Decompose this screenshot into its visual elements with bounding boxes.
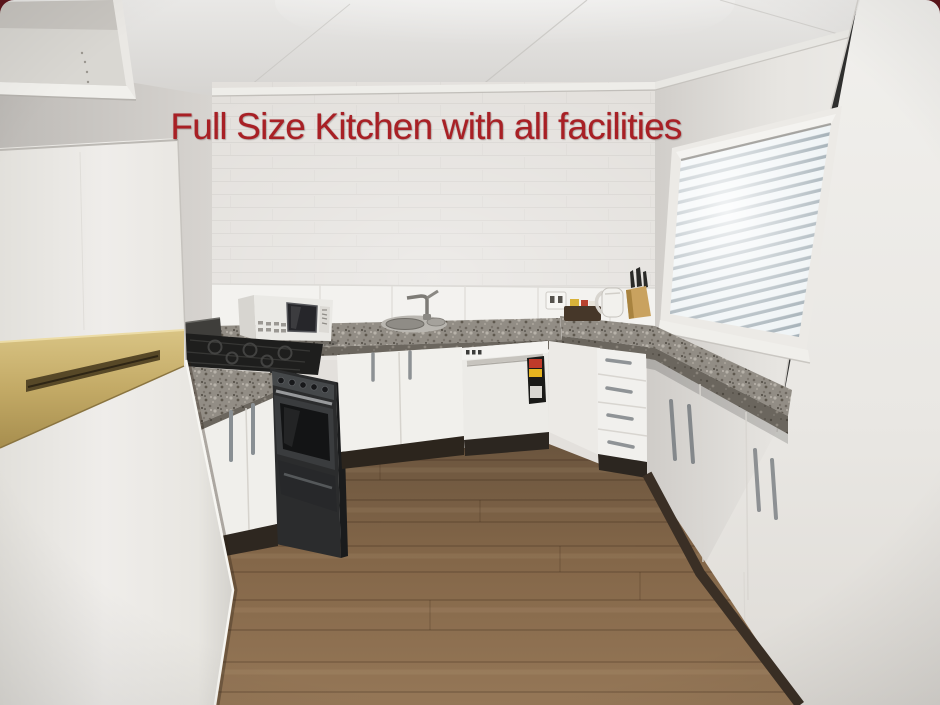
caption-text: Full Size Kitchen with all facilities: [170, 106, 681, 148]
kitchen-photo: Full Size Kitchen with all facilities: [0, 0, 940, 705]
